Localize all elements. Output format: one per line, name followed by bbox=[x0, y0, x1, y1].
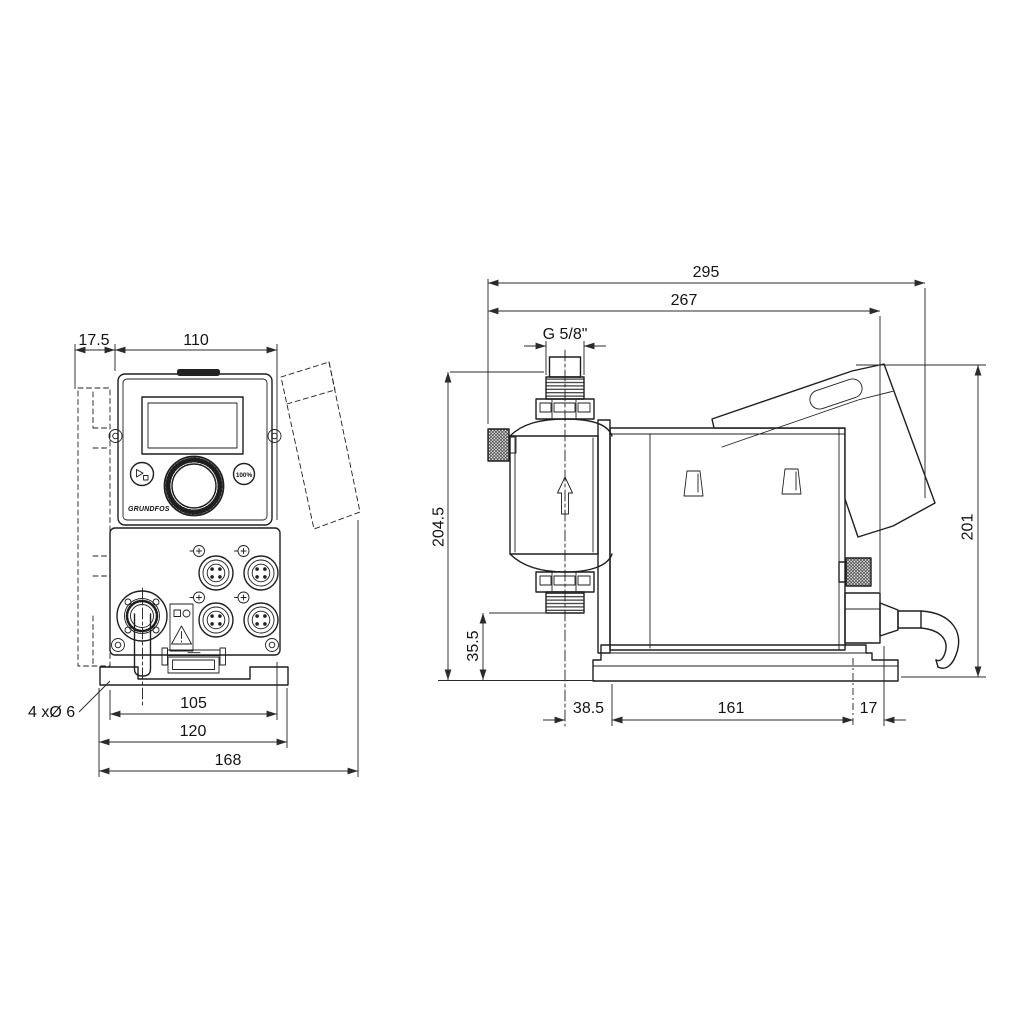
hood-ghost bbox=[281, 362, 360, 529]
m12-connectors bbox=[190, 546, 278, 638]
dimensional-drawing-page: 100% GRUNDFOS bbox=[0, 0, 1024, 1024]
grundfos-logo: GRUNDFOS bbox=[128, 506, 170, 513]
suction-thread bbox=[546, 592, 584, 613]
housing-screws bbox=[109, 430, 281, 443]
housing-top-tab bbox=[177, 369, 220, 376]
warning-triangle-icon bbox=[172, 626, 192, 644]
start-stop-button bbox=[131, 463, 154, 486]
pump-head bbox=[488, 357, 612, 613]
power-cable bbox=[921, 611, 959, 668]
dim-label-baseplate-depth: 161 bbox=[718, 700, 745, 717]
dim-label-rear-height: 201 bbox=[960, 514, 977, 541]
front-view-dimensions: 17.5 110 105 120 168 4 xØ 6 bbox=[28, 332, 358, 777]
dim-label-wall-clearance: 17.5 bbox=[78, 332, 109, 349]
click-wheel bbox=[165, 457, 224, 516]
dim-label-suction-valve-height: 35.5 bbox=[465, 630, 482, 661]
m12-connector-icon bbox=[199, 556, 233, 590]
hundred-percent-button: 100% bbox=[234, 464, 255, 485]
m12-connector-icon bbox=[244, 603, 278, 637]
hundred-percent-label: 100% bbox=[236, 472, 253, 479]
dim-label-connector-overhang: 17 bbox=[860, 700, 878, 717]
power-plug bbox=[845, 593, 959, 668]
m12-connector-icon bbox=[244, 556, 278, 590]
pump-dimensional-drawing: 100% GRUNDFOS bbox=[0, 0, 1024, 1024]
pump-body bbox=[598, 420, 845, 653]
side-view bbox=[488, 350, 959, 726]
control-housing: 100% GRUNDFOS bbox=[109, 369, 281, 525]
warning-label bbox=[170, 604, 193, 651]
mount-holes-label: 4 xØ 6 bbox=[28, 704, 75, 721]
pump-head-flange bbox=[117, 591, 167, 641]
dim-label-overall-height: 204.5 bbox=[431, 507, 448, 547]
mounting-bracket bbox=[162, 648, 226, 673]
dim-label-mount-plate-width: 120 bbox=[180, 723, 207, 740]
body-recess-tabs bbox=[684, 469, 801, 496]
connection-housing bbox=[110, 528, 280, 655]
m12-connector-icon bbox=[199, 603, 233, 637]
dim-label-depth-to-connector: 267 bbox=[671, 292, 698, 309]
front-view: 100% GRUNDFOS bbox=[78, 362, 360, 708]
start-stop-icon bbox=[137, 470, 149, 481]
dim-label-overall-depth: 295 bbox=[693, 264, 720, 281]
dim-label-mount-hole-spacing: 105 bbox=[180, 695, 207, 712]
dim-label-housing-width: 110 bbox=[183, 332, 209, 349]
mount-holes-leader bbox=[79, 681, 110, 712]
dim-label-overall-width: 168 bbox=[215, 752, 242, 769]
wall-plate-ghost bbox=[78, 388, 110, 666]
discharge-thread bbox=[546, 377, 584, 399]
control-cube bbox=[712, 364, 935, 537]
dim-label-connection-thread: G 5/8" bbox=[543, 326, 588, 343]
display-screen bbox=[142, 397, 243, 454]
signal-connector bbox=[839, 558, 871, 586]
vent-valve-knob bbox=[488, 429, 509, 461]
dim-label-valve-center-offset: 38.5 bbox=[573, 700, 604, 717]
